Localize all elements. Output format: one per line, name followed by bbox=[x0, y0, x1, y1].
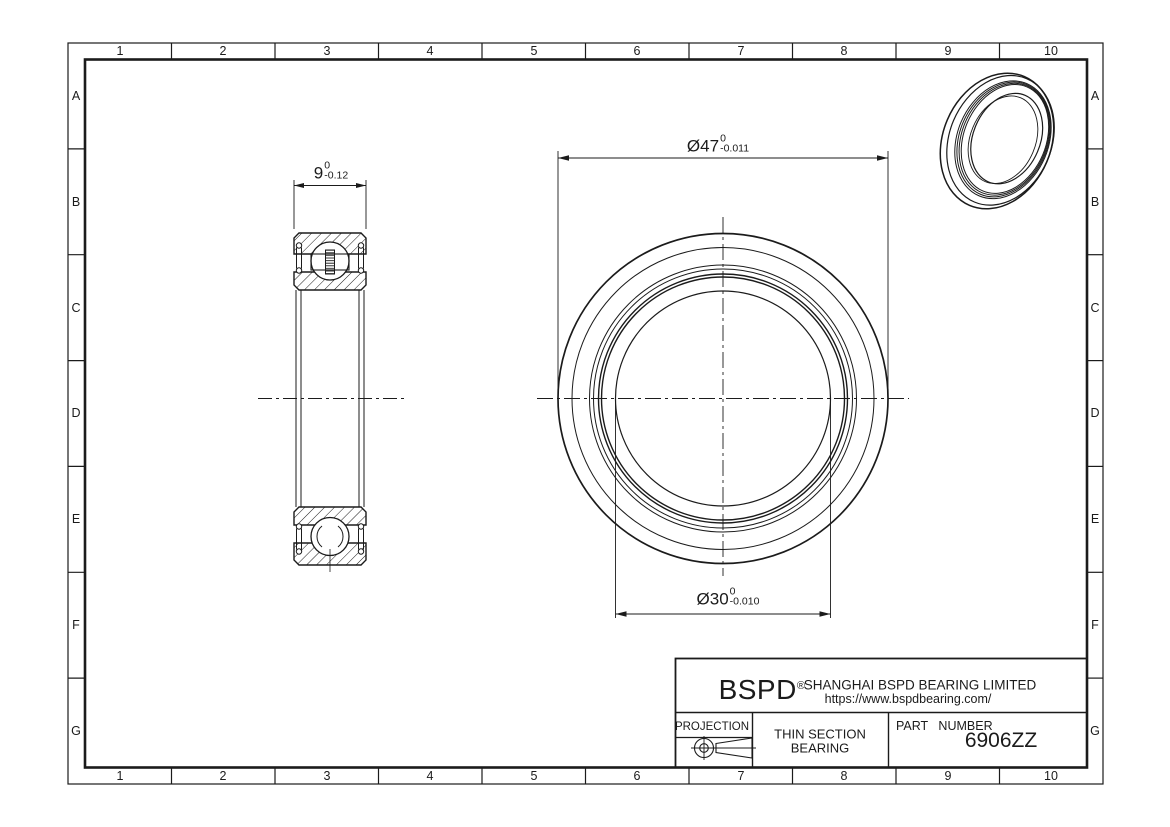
drawing-sheet: 1 2 3 4 5 6 7 8 9 10 1 2 3 4 5 6 7 8 9 1… bbox=[0, 0, 1170, 827]
shield-top-right bbox=[358, 243, 363, 273]
grid-row-label: C bbox=[71, 302, 80, 315]
grid-col-label: 7 bbox=[738, 45, 745, 58]
grid-col-label: 1 bbox=[117, 45, 124, 58]
grid-row-label: G bbox=[71, 725, 81, 738]
shield-bottom-right bbox=[358, 524, 363, 554]
front-view-centerlines bbox=[537, 217, 909, 576]
product-name-line1: THIN SECTION bbox=[774, 727, 866, 742]
grid-row-label: B bbox=[1091, 196, 1099, 209]
grid-row-label: A bbox=[1091, 90, 1099, 103]
grid-row-label: F bbox=[72, 619, 80, 632]
grid-col-label: 4 bbox=[427, 770, 434, 783]
projection-label: PROJECTION bbox=[675, 721, 749, 733]
grid-col-label: 9 bbox=[945, 770, 952, 783]
drawing-linework bbox=[0, 0, 1170, 827]
product-name-line2: BEARING bbox=[791, 741, 850, 756]
grid-col-label: 6 bbox=[634, 45, 641, 58]
grid-row-label: A bbox=[72, 90, 80, 103]
grid-row-label: D bbox=[1090, 407, 1099, 420]
grid-col-label: 10 bbox=[1044, 45, 1058, 58]
projection-symbol-icon bbox=[691, 736, 756, 760]
grid-col-label: 1 bbox=[117, 770, 124, 783]
company-name: SHANGHAI BSPD BEARING LIMITED bbox=[804, 678, 1037, 693]
section-view bbox=[258, 180, 404, 572]
grid-row-label: E bbox=[72, 513, 80, 526]
grid-row-label: G bbox=[1090, 725, 1100, 738]
grid-row-label: F bbox=[1091, 619, 1099, 632]
bore-diameter-dimension-text: Ø30 0 -0.010 bbox=[697, 591, 760, 608]
grid-ticks bbox=[68, 43, 1103, 784]
width-dimension-text: 9 0 -0.12 bbox=[314, 165, 348, 182]
front-view bbox=[537, 151, 909, 618]
grid-row-label: E bbox=[1091, 513, 1099, 526]
grid-col-label: 3 bbox=[324, 45, 331, 58]
grid-col-label: 5 bbox=[531, 45, 538, 58]
part-number-value: 6906ZZ bbox=[965, 729, 1037, 753]
company-website: https://www.bspdbearing.com/ bbox=[825, 692, 992, 706]
sheet-frame bbox=[68, 43, 1103, 784]
grid-col-label: 10 bbox=[1044, 770, 1058, 783]
grid-col-label: 2 bbox=[220, 770, 227, 783]
grid-col-label: 9 bbox=[945, 45, 952, 58]
grid-row-label: B bbox=[72, 196, 80, 209]
grid-col-label: 8 bbox=[841, 45, 848, 58]
shield-bottom-left bbox=[296, 524, 301, 554]
outer-diameter-dimension-text: Ø47 0 -0.011 bbox=[687, 138, 749, 155]
grid-col-label: 8 bbox=[841, 770, 848, 783]
cage-rivet bbox=[326, 250, 335, 274]
grid-row-label: D bbox=[71, 407, 80, 420]
grid-col-label: 2 bbox=[220, 45, 227, 58]
shield-top-left bbox=[296, 243, 301, 273]
grid-col-label: 5 bbox=[531, 770, 538, 783]
grid-row-label: C bbox=[1090, 302, 1099, 315]
grid-col-label: 3 bbox=[324, 770, 331, 783]
grid-col-label: 6 bbox=[634, 770, 641, 783]
company-logo: BSPD® bbox=[719, 672, 806, 704]
grid-col-label: 7 bbox=[738, 770, 745, 783]
width-dimension bbox=[294, 180, 366, 229]
grid-col-label: 4 bbox=[427, 45, 434, 58]
isometric-view bbox=[920, 55, 1074, 226]
